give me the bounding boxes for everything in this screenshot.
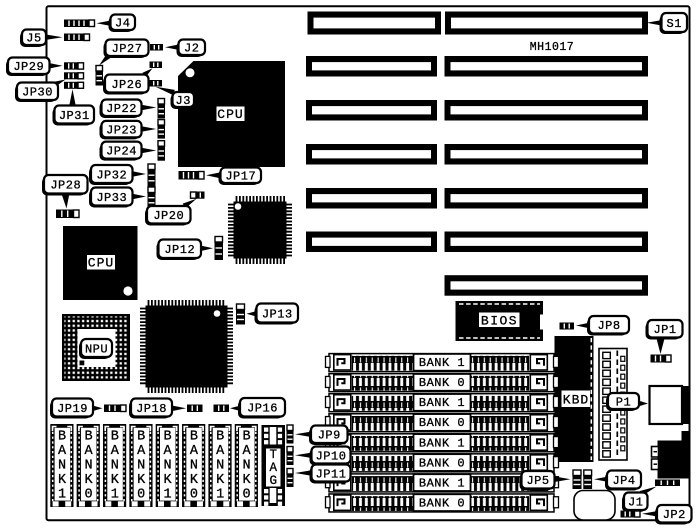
svg-text:S1: S1: [667, 17, 682, 31]
svg-text:J5: J5: [26, 32, 41, 46]
svg-text:JP18: JP18: [136, 402, 167, 416]
svg-text:B: B: [84, 430, 92, 445]
svg-text:N: N: [111, 459, 119, 474]
svg-text:B: B: [137, 430, 145, 445]
svg-text:A: A: [58, 444, 67, 459]
svg-text:JP32: JP32: [96, 168, 127, 182]
svg-text:J4: J4: [115, 17, 130, 31]
svg-text:JP20: JP20: [153, 209, 184, 223]
svg-text:JP30: JP30: [22, 86, 53, 100]
svg-text:JP5: JP5: [526, 474, 549, 488]
svg-text:BANK 0: BANK 0: [419, 497, 465, 511]
svg-text:BANK 0: BANK 0: [419, 416, 465, 430]
svg-text:T: T: [270, 448, 278, 462]
svg-text:1: 1: [216, 488, 224, 503]
svg-text:P1: P1: [616, 395, 631, 409]
svg-text:A: A: [163, 444, 172, 459]
svg-text:J2: J2: [184, 42, 199, 56]
svg-text:K: K: [163, 473, 172, 488]
svg-text:JP28: JP28: [50, 179, 81, 193]
svg-text:BANK 1: BANK 1: [419, 436, 465, 450]
svg-text:B: B: [216, 430, 224, 445]
svg-text:JP23: JP23: [106, 123, 137, 137]
svg-text:K: K: [84, 473, 93, 488]
svg-text:A: A: [137, 444, 146, 459]
svg-text:JP27: JP27: [112, 42, 143, 56]
svg-text:BANK 0: BANK 0: [419, 376, 465, 390]
svg-text:1: 1: [58, 488, 66, 503]
svg-text:K: K: [243, 473, 252, 488]
svg-text:JP33: JP33: [96, 191, 127, 205]
svg-text:A: A: [216, 444, 225, 459]
svg-text:N: N: [137, 459, 145, 474]
svg-text:K: K: [190, 473, 199, 488]
svg-text:CPU: CPU: [217, 107, 243, 122]
svg-text:JP2: JP2: [663, 508, 686, 522]
svg-text:JP12: JP12: [164, 243, 195, 257]
svg-text:BANK 0: BANK 0: [419, 456, 465, 470]
svg-text:BANK 1: BANK 1: [419, 396, 465, 410]
svg-text:N: N: [58, 459, 66, 474]
svg-text:B: B: [58, 430, 66, 445]
svg-text:CPU: CPU: [88, 256, 114, 271]
svg-text:N: N: [163, 459, 171, 474]
svg-text:BANK 1: BANK 1: [419, 476, 465, 490]
svg-text:KBD: KBD: [563, 393, 589, 408]
svg-text:1: 1: [163, 488, 171, 503]
svg-text:K: K: [216, 473, 225, 488]
svg-text:JP19: JP19: [57, 402, 88, 416]
svg-text:0: 0: [243, 488, 251, 503]
svg-text:JP13: JP13: [262, 307, 293, 321]
svg-text:JP11: JP11: [316, 467, 347, 481]
svg-text:B: B: [243, 430, 251, 445]
svg-text:JP4: JP4: [612, 474, 635, 488]
svg-text:JP1: JP1: [653, 323, 676, 337]
svg-text:MH1017: MH1017: [530, 41, 574, 54]
svg-text:N: N: [84, 459, 92, 474]
svg-text:A: A: [111, 444, 120, 459]
svg-text:JP26: JP26: [111, 78, 142, 92]
svg-text:J3: J3: [176, 94, 191, 108]
svg-text:K: K: [137, 473, 146, 488]
svg-text:JP10: JP10: [316, 449, 347, 463]
svg-text:A: A: [84, 444, 93, 459]
svg-text:NPU: NPU: [85, 343, 108, 357]
svg-text:K: K: [58, 473, 67, 488]
svg-text:J1: J1: [628, 496, 643, 510]
svg-text:G: G: [270, 474, 278, 488]
svg-text:JP16: JP16: [247, 402, 278, 416]
svg-text:0: 0: [137, 488, 145, 503]
svg-text:JP22: JP22: [106, 102, 137, 116]
svg-text:JP31: JP31: [59, 109, 90, 123]
svg-text:N: N: [216, 459, 224, 474]
svg-text:JP9: JP9: [318, 429, 341, 443]
svg-text:0: 0: [84, 488, 92, 503]
svg-text:0: 0: [190, 488, 198, 503]
svg-text:JP8: JP8: [597, 319, 620, 333]
svg-text:JP17: JP17: [225, 170, 256, 184]
svg-text:A: A: [243, 444, 252, 459]
svg-text:BIOS: BIOS: [481, 313, 518, 328]
svg-text:BANK 1: BANK 1: [419, 356, 465, 370]
svg-text:A: A: [270, 461, 278, 475]
svg-text:B: B: [163, 430, 171, 445]
svg-text:N: N: [243, 459, 251, 474]
svg-text:B: B: [190, 430, 198, 445]
svg-text:N: N: [190, 459, 198, 474]
svg-text:A: A: [190, 444, 199, 459]
svg-text:JP29: JP29: [13, 60, 44, 74]
svg-text:B: B: [111, 430, 119, 445]
svg-text:1: 1: [111, 488, 119, 503]
svg-text:JP24: JP24: [106, 144, 137, 158]
svg-text:K: K: [111, 473, 120, 488]
